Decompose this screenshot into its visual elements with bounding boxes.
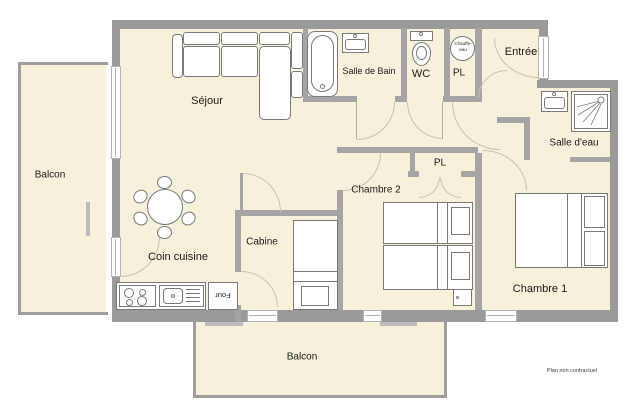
sofa-back-cushion [259,32,290,45]
room-label-pl-chambre2: PL [434,158,446,169]
bed-frame-line [581,193,582,268]
window-sejour-balcony [111,66,121,159]
sofa-armrest [172,34,183,78]
floor-balcony-bottom [196,322,444,395]
sofa-side-cushion [291,71,303,98]
room-label-chambre1: Chambre 1 [513,283,567,295]
wall-left-upper [112,20,120,68]
dining-table-icon [147,189,183,225]
wall-bottom-2 [278,310,363,322]
drainboard-line [186,301,200,302]
water-heater-icon: Chauffe-eau [450,36,475,61]
wall-cabine-left-a [235,216,241,272]
room-label-chambre2: Chambre 2 [351,185,400,196]
wall-left-middle [112,157,120,237]
drainboard-line [186,293,200,294]
room-label-salle-deau: Salle d'eau [549,138,598,149]
window-glazing-line [249,315,276,316]
wall-bath-bottom-b [395,96,407,102]
wall-wc-pl [444,28,450,102]
room-label-entree: Entrée [505,46,537,58]
bed-frame-line [437,245,438,290]
bed-frame-line [437,202,438,244]
pillow [451,252,470,280]
room-label-balcon-left: Balcon [35,170,66,181]
wall-pl2-bottom-b [461,171,478,177]
threshold-step [205,322,243,326]
wall-hall-stub-v [524,117,530,160]
pillow [451,207,470,235]
balcony-left-wall-top [18,62,108,65]
window-glazing-line [115,239,116,275]
shower-spray [572,92,610,131]
wall-bottom-3 [382,310,485,322]
door-leaf-salle-de-bain [356,102,357,139]
room-label-sejour: Séjour [191,95,223,107]
cooktop-burner [124,288,134,298]
sink-basin [544,97,565,109]
room-label-salle-de-bain: Salle de Bain [342,66,395,76]
sink-basin [345,39,366,50]
wall-top [112,20,548,29]
room-label-pl-entree: PL [453,68,465,79]
drainboard-line [186,289,200,290]
wall-sdb-wc [401,28,407,102]
toilet-button [419,32,423,36]
wall-bottom-4 [517,310,618,322]
wall-bottom-1 [112,310,247,322]
window-glazing-line [487,315,515,316]
bed-frame-line [447,245,448,290]
wall-pl2-left [410,153,415,171]
window-chambre1 [485,310,517,322]
chair-icon [157,176,172,189]
footnote-disclaimer: Plan non contractuel [547,368,597,374]
bed-frame-line [447,202,448,244]
bathtub-drain [320,84,325,89]
oven-label: Four [209,283,237,309]
bed-frame-line [567,193,568,268]
chair-icon [157,226,172,239]
kitchen-sink-drain [171,294,175,298]
room-label-cabine: Cabine [246,237,278,248]
balcony-left-wall-left [18,62,21,315]
sofa-back-cushion [221,32,258,45]
sofa-side-cushion [291,32,303,69]
window-glazing-line [543,38,544,77]
bed-frame-line [293,281,338,282]
cooktop-burner [126,299,133,306]
wall-salle-deau-bottom [570,157,610,162]
window-chambre2 [363,310,382,322]
oven-icon: Four [208,282,238,310]
pillow [584,231,605,266]
sofa-seat-cushion [183,46,220,77]
pillow [584,196,605,228]
sofa-back-cushion [183,32,220,45]
bed-frame-line [293,271,338,272]
cooktop-burner [137,296,147,306]
room-label-balcon-bottom: Balcon [287,352,318,363]
nightstand-knob [456,296,459,299]
window-glazing-line [115,68,116,157]
toilet-bowl-inner [416,46,427,60]
sink-faucet [552,92,556,96]
door-opening-kitchen-terrace [247,310,278,322]
wall-salle-deau-top [537,80,618,88]
threshold-step [380,322,417,326]
wall-pl2-bottom-a [408,171,419,177]
sofa-seat-cushion [221,46,258,77]
sink-faucet [353,34,357,38]
room-label-coin-cuisine: Coin cuisine [148,251,208,263]
threshold-step [86,202,90,236]
pillow [301,286,329,306]
balcony-bottom-wall-left [193,322,196,398]
door-leaf-wc [442,102,443,139]
balcony-bottom-wall-bottom [193,395,447,398]
window-glazing-line [365,315,380,316]
shower-icon [571,91,611,132]
balcony-bottom-wall-right [444,322,447,398]
floor-balcony-left [21,65,106,312]
water-heater-label: Chauffe-eau [452,41,474,52]
sofa-chaise [259,46,291,120]
drainboard-line [186,297,200,298]
cooktop-burner [139,289,146,296]
room-label-wc: WC [412,68,430,80]
floor-plan: Chauffe-eau Four [0,0,640,414]
balcony-left-wall-bottom [18,312,108,315]
wall-right [610,80,618,322]
